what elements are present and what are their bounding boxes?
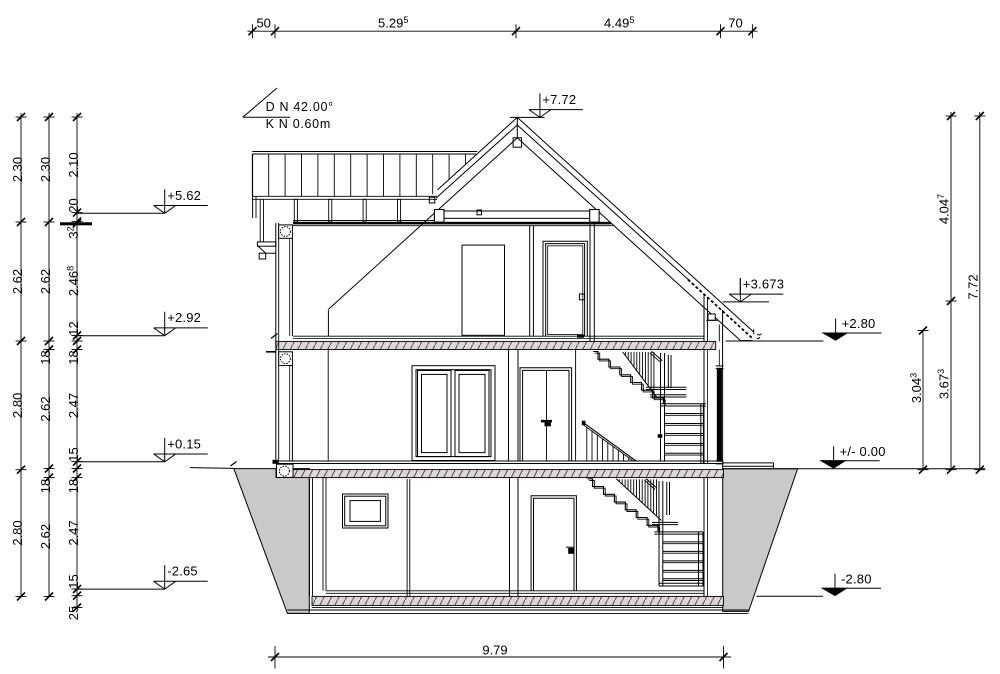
svg-text:D N 42.00°: D N 42.00°	[266, 100, 334, 114]
svg-text:-2.80: -2.80	[841, 571, 872, 586]
svg-text:7.72: 7.72	[965, 274, 980, 299]
svg-text:2.10: 2.10	[66, 152, 81, 177]
svg-text:2.62: 2.62	[38, 269, 53, 294]
svg-text:+2.80: +2.80	[842, 316, 876, 331]
svg-text:2.62: 2.62	[38, 524, 53, 549]
svg-text:K N 0.60m: K N 0.60m	[266, 117, 331, 131]
svg-text:2.30: 2.30	[38, 157, 53, 182]
svg-text:18: 18	[66, 479, 81, 493]
svg-text:2.30: 2.30	[10, 157, 25, 182]
svg-text:25: 25	[66, 606, 81, 620]
svg-text:20: 20	[66, 198, 81, 212]
svg-text:50: 50	[256, 16, 270, 31]
svg-text:18: 18	[66, 350, 81, 364]
svg-text:2.80: 2.80	[10, 393, 25, 418]
svg-text:9.79: 9.79	[482, 643, 507, 658]
svg-text:+3.673: +3.673	[743, 276, 784, 291]
svg-text:+5.62: +5.62	[167, 188, 201, 203]
svg-text:+2.92: +2.92	[167, 310, 201, 325]
svg-text:+/- 0.00: +/- 0.00	[840, 444, 886, 459]
svg-text:+0.15: +0.15	[167, 436, 201, 451]
svg-text:2.62: 2.62	[38, 396, 53, 421]
svg-text:2.47: 2.47	[66, 520, 81, 545]
svg-text:2.47: 2.47	[66, 393, 81, 418]
svg-text:2.62: 2.62	[10, 269, 25, 294]
svg-text:+7.72: +7.72	[542, 92, 576, 107]
svg-text:18: 18	[38, 479, 53, 493]
svg-text:12: 12	[66, 321, 81, 335]
svg-text:70: 70	[728, 16, 742, 31]
svg-text:18: 18	[38, 350, 53, 364]
svg-text:-2.65: -2.65	[167, 564, 198, 579]
svg-text:15: 15	[66, 574, 81, 588]
svg-text:2.80: 2.80	[10, 520, 25, 545]
svg-text:15: 15	[66, 447, 81, 461]
